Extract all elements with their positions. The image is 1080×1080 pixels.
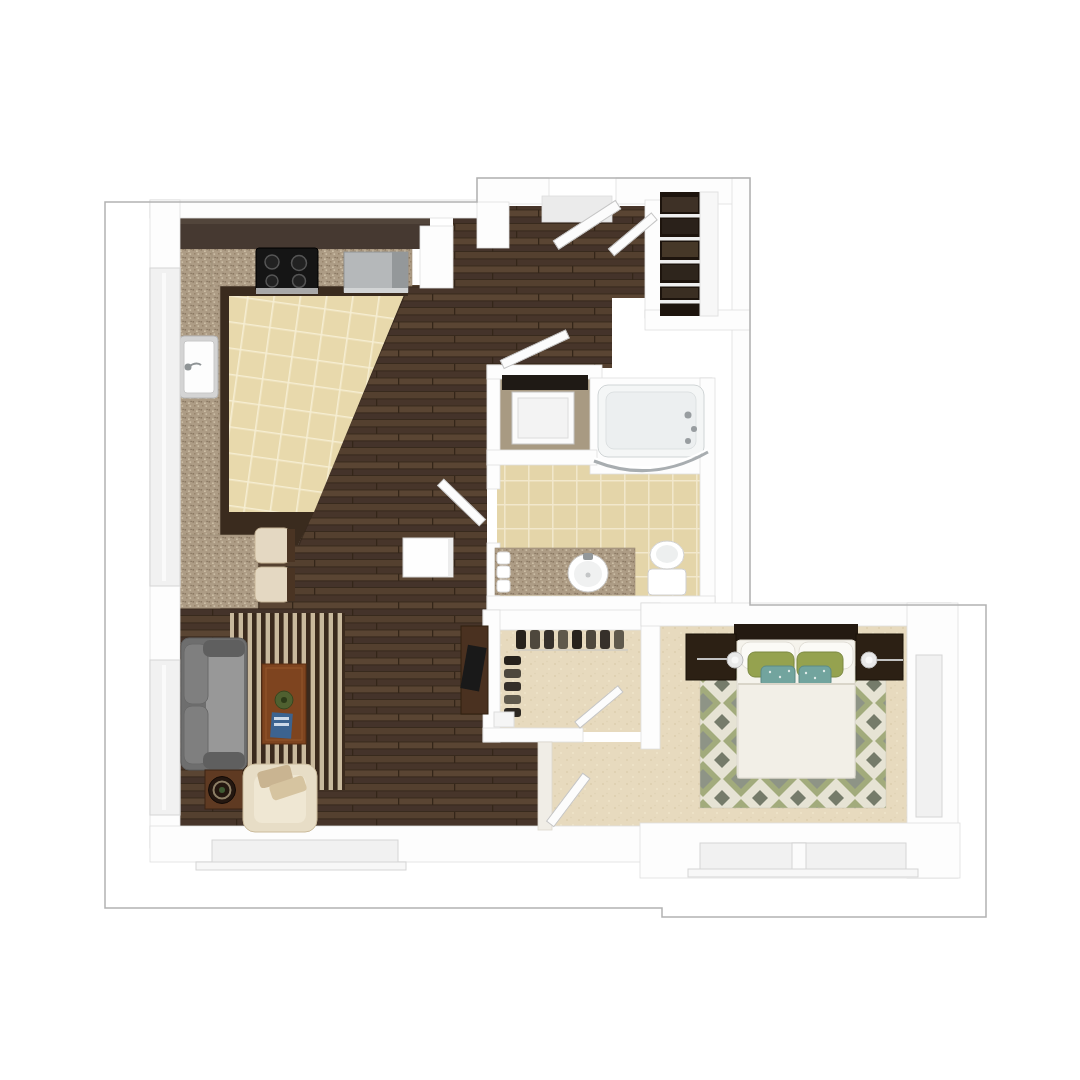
duvet: [738, 684, 855, 778]
vanity-counter: [495, 548, 635, 595]
stove-front-edge: [256, 288, 318, 294]
armchair: [243, 764, 317, 832]
bedroom-window-sill: [688, 869, 918, 877]
tray-center: [219, 787, 225, 793]
toilet-tank: [648, 569, 686, 595]
refrigerator-side-shade: [392, 252, 408, 292]
hall-cabinet-shade: [448, 538, 453, 577]
bar-stool-back: [287, 529, 295, 562]
sofa-armrest: [203, 752, 245, 769]
washer-dryer-lid: [518, 398, 568, 438]
closet-shoe-box: [494, 712, 514, 727]
hallway-cabinet: [403, 538, 453, 577]
wall-right: [732, 178, 750, 608]
lamp-left-center: [732, 657, 739, 664]
kitchen-window-glass: [162, 273, 166, 581]
toilet-seat: [656, 545, 678, 563]
entry-closet-side-panel: [700, 192, 718, 316]
wall-top-entry-left: [477, 178, 549, 204]
wall-laundry-divider: [487, 450, 597, 465]
stove: [256, 248, 318, 292]
wall-bedroom-top: [641, 603, 951, 626]
bar-stool-back: [287, 568, 295, 601]
bedroom-right-window: [916, 655, 942, 817]
sofa: [181, 638, 247, 770]
desk: [460, 626, 488, 714]
living-side-window-glass: [162, 665, 166, 810]
plant-center: [281, 697, 287, 703]
bar-stool: [255, 528, 290, 563]
lamp-right-center: [866, 657, 873, 664]
side-table: [205, 770, 243, 809]
bedroom: [686, 624, 903, 808]
bathtub-basin: [606, 392, 696, 449]
bedroom-hall-carpet: [549, 742, 659, 830]
kitchen-peninsula-counter: [178, 535, 258, 608]
living-window-sill: [196, 862, 406, 870]
floor-plan-page: [0, 0, 1080, 1080]
sink-drain: [586, 573, 591, 578]
headboard: [734, 624, 858, 641]
wall-closet-bottom: [483, 728, 583, 742]
bedroom-window-mullion: [792, 843, 806, 871]
floor-plan-canvas: [0, 0, 1080, 1080]
sofa-armrest: [203, 640, 245, 657]
living-bottom-window: [212, 840, 398, 864]
wall-closet-top: [483, 610, 645, 630]
vanity-towels: [497, 552, 510, 592]
wall-kitchen-stub: [420, 226, 453, 288]
wall-bath-left-upper: [487, 365, 500, 489]
book-detail: [274, 717, 289, 720]
coffee-table: [262, 664, 306, 744]
sofa-seat: [206, 652, 244, 756]
refrigerator-front-edge: [344, 288, 408, 293]
laundry-upper-cabinet: [502, 375, 588, 390]
bar-stool: [255, 567, 290, 602]
wall-entry-corner: [477, 202, 509, 248]
hall-cabinet-top: [403, 538, 453, 577]
book-detail: [274, 723, 289, 726]
bed: [734, 624, 858, 778]
entry-closet: [660, 192, 718, 316]
vanity-faucet: [583, 553, 593, 560]
